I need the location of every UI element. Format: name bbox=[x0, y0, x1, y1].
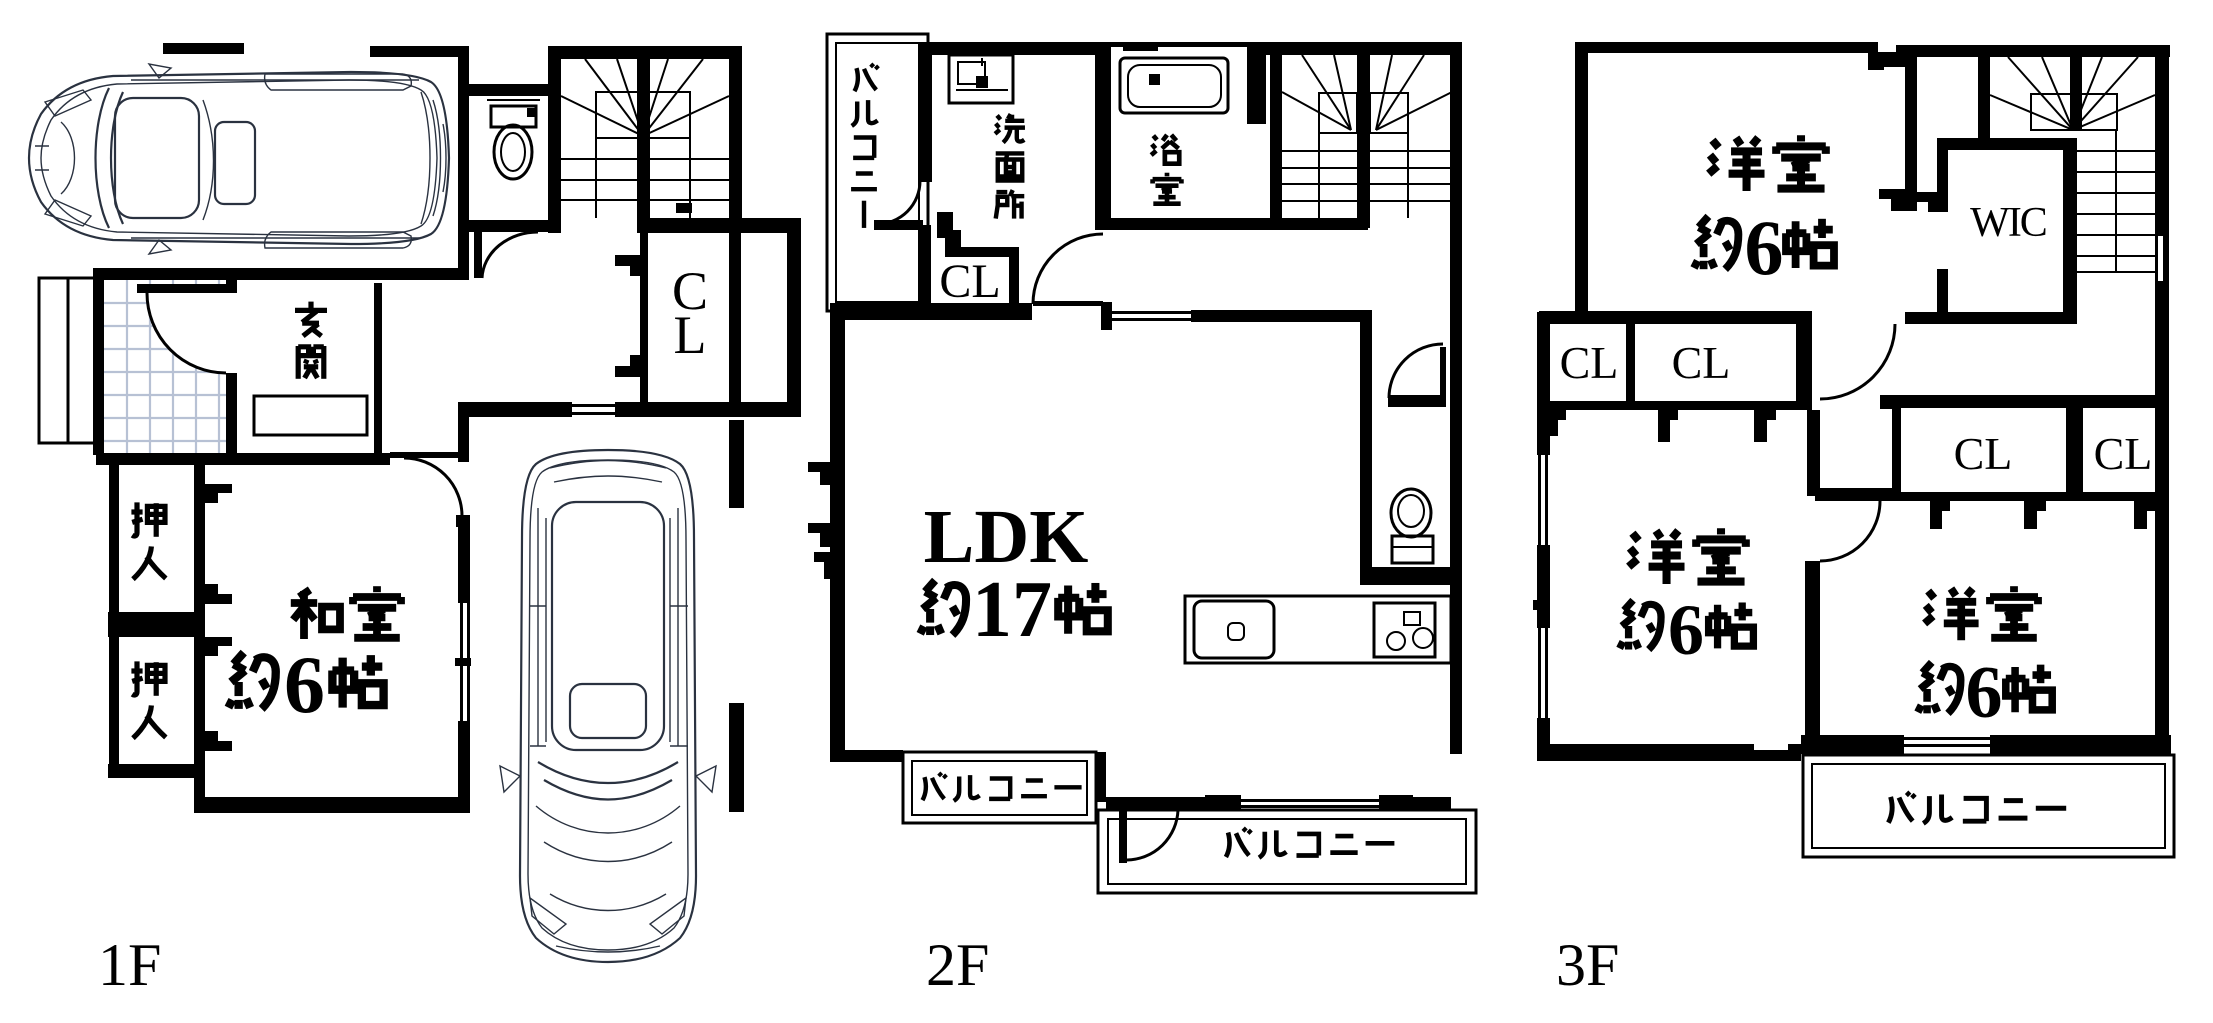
svg-text:CL: CL bbox=[1560, 337, 1619, 388]
svg-text:CL: CL bbox=[2094, 428, 2153, 479]
svg-text:3F: 3F bbox=[1556, 932, 1619, 998]
svg-text:WIC: WIC bbox=[1970, 200, 2046, 246]
svg-text:CL: CL bbox=[1954, 428, 2013, 479]
svg-text:17: 17 bbox=[972, 566, 1052, 654]
svg-text:2F: 2F bbox=[926, 932, 989, 998]
svg-text:1F: 1F bbox=[98, 932, 161, 998]
svg-text:6: 6 bbox=[284, 639, 325, 730]
svg-text:L: L bbox=[674, 305, 707, 365]
svg-text:CL: CL bbox=[1672, 337, 1731, 388]
svg-text:CL: CL bbox=[939, 255, 1000, 308]
svg-text:6: 6 bbox=[1668, 590, 1704, 670]
svg-text:6: 6 bbox=[1966, 652, 2003, 734]
svg-text:6: 6 bbox=[1745, 204, 1784, 291]
